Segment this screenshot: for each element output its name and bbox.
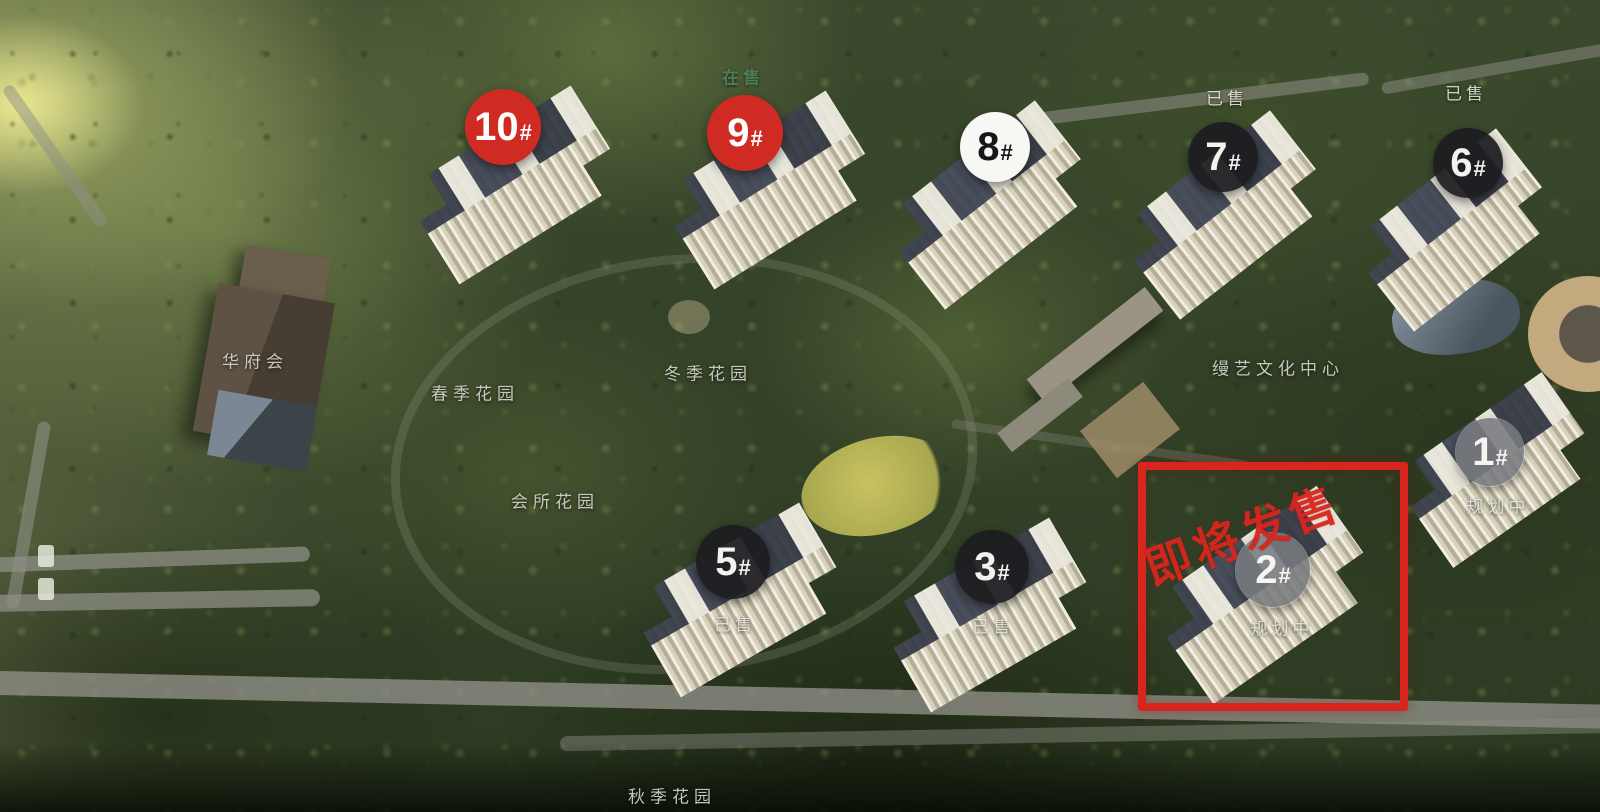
area-label: 华府会	[222, 348, 288, 373]
hash-suffix: #	[1001, 140, 1013, 166]
hash-suffix: #	[520, 120, 532, 146]
entrance-gate	[38, 578, 54, 600]
garden-plaza-circle	[668, 300, 710, 334]
building-marker-8[interactable]: 8#	[960, 112, 1030, 182]
hash-suffix: #	[1496, 445, 1508, 471]
building-number: 8	[977, 127, 999, 167]
entrance-gate	[38, 545, 54, 567]
hash-suffix: #	[751, 126, 763, 152]
building-marker-6[interactable]: 6#	[1433, 128, 1503, 198]
site-plan: 在售已售已售已售已售规划中规划中华府会春季花园冬季花园会所花园秋季花园缦艺文化中…	[0, 0, 1600, 812]
status-label-sold: 已售	[1445, 80, 1487, 105]
hash-suffix: #	[1474, 156, 1486, 182]
status-label-sold: 已售	[1206, 85, 1248, 110]
building-marker-9[interactable]: 9#	[707, 95, 783, 171]
building-marker-5[interactable]: 5#	[696, 525, 770, 599]
area-label: 春季花园	[431, 380, 519, 405]
area-label: 冬季花园	[664, 360, 752, 385]
building-marker-10[interactable]: 10#	[465, 89, 541, 165]
area-label: 秋季花园	[628, 783, 716, 808]
status-label-planning: 规划中	[1467, 493, 1530, 518]
building-marker-3[interactable]: 3#	[955, 530, 1029, 604]
building-marker-7[interactable]: 7#	[1188, 122, 1258, 192]
building-number: 9	[727, 113, 749, 153]
building-number: 10	[474, 107, 519, 147]
building-marker-1[interactable]: 1#	[1456, 418, 1524, 486]
hash-suffix: #	[739, 555, 751, 581]
area-label: 会所花园	[511, 488, 599, 513]
building-number: 6	[1450, 143, 1472, 183]
building-number: 3	[974, 547, 996, 587]
area-label: 缦艺文化中心	[1212, 355, 1344, 380]
status-label-sold: 已售	[714, 611, 756, 636]
status-label-onsale: 在售	[722, 64, 764, 89]
status-label-sold: 已售	[972, 613, 1014, 638]
building-number: 7	[1205, 137, 1227, 177]
hash-suffix: #	[1229, 150, 1241, 176]
hash-suffix: #	[998, 560, 1010, 586]
building-number: 5	[715, 542, 737, 582]
building-number: 1	[1472, 432, 1494, 472]
